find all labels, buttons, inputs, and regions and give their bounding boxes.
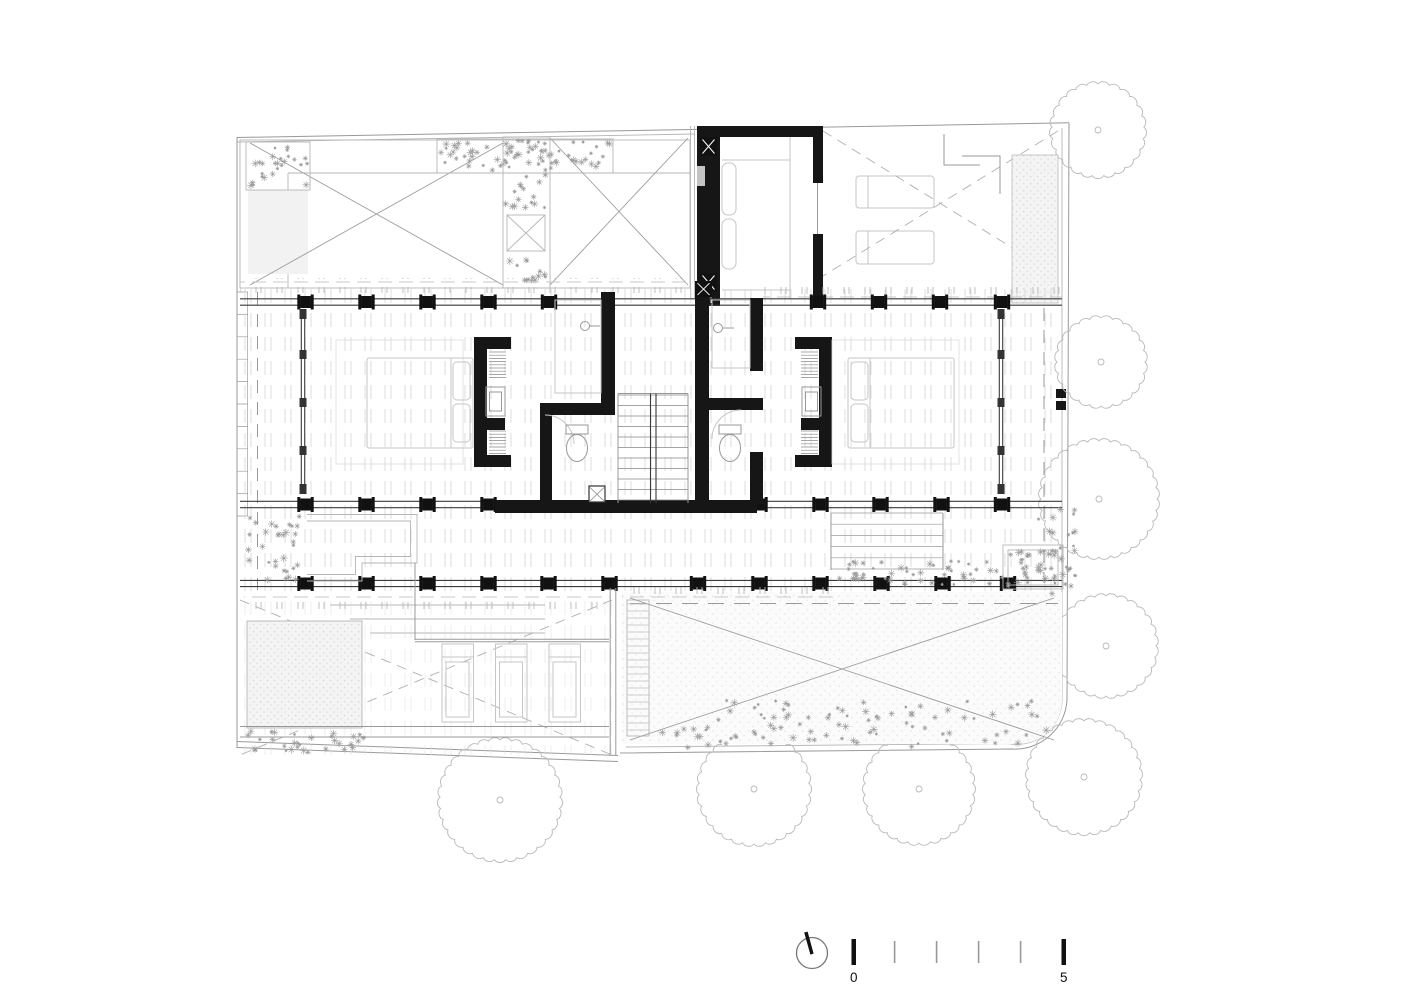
bench [722,163,736,215]
tree-icon [1054,594,1158,698]
gravel-strip [1012,155,1058,303]
tree-icon [437,738,562,863]
deck-edge-ticks [622,586,838,601]
wall [750,298,763,371]
scale-tick-minor [978,941,980,963]
scale-tick-minor [1020,941,1022,963]
column-box [700,137,717,156]
column-box [695,281,712,297]
wall [540,403,552,513]
wall [795,455,832,467]
scale-bar: 0 5 [850,939,1068,985]
main-floor [239,281,1063,633]
wall [695,500,757,513]
bench [722,219,736,269]
wall [813,126,823,183]
roof-gravel-strip [248,190,308,274]
scale-tick-major [1062,939,1067,965]
scale-label-start: 0 [850,970,858,985]
window-slot [697,166,705,186]
tree-icon [1049,82,1146,179]
scale-tick-major [852,939,857,965]
wall [601,292,615,406]
floor-plan-sheet: 0 5 [0,0,1414,1000]
scale-tick-minor [936,941,938,963]
wall [474,418,505,430]
wall [795,337,832,349]
floor-plan-drawing: 0 5 [0,0,1414,1000]
closet-lines [722,137,790,298]
garden-surface [622,592,1062,744]
wall [697,126,823,137]
planter-vegetation [247,145,310,190]
roof-terrace-upper-left [240,126,695,298]
wall [474,337,511,349]
scale-label-end: 5 [1060,970,1068,985]
roof-drain-lines [944,134,1000,194]
wall [474,455,511,467]
deck-edge-ticks [763,285,1062,299]
deck-edge-ticks [244,596,610,611]
terrace-pad [247,621,362,728]
wall [801,418,832,430]
tree-icon [696,732,811,847]
title-strip: 0 5 [797,932,1068,985]
wall [474,337,487,467]
upper-room-block [697,126,1058,306]
wall [695,398,763,410]
planter-vegetation [438,140,613,173]
skylight-x-mark [507,215,545,251]
scale-tick-minor [894,941,896,963]
wall [750,452,763,504]
north-arrow-icon [797,932,828,969]
